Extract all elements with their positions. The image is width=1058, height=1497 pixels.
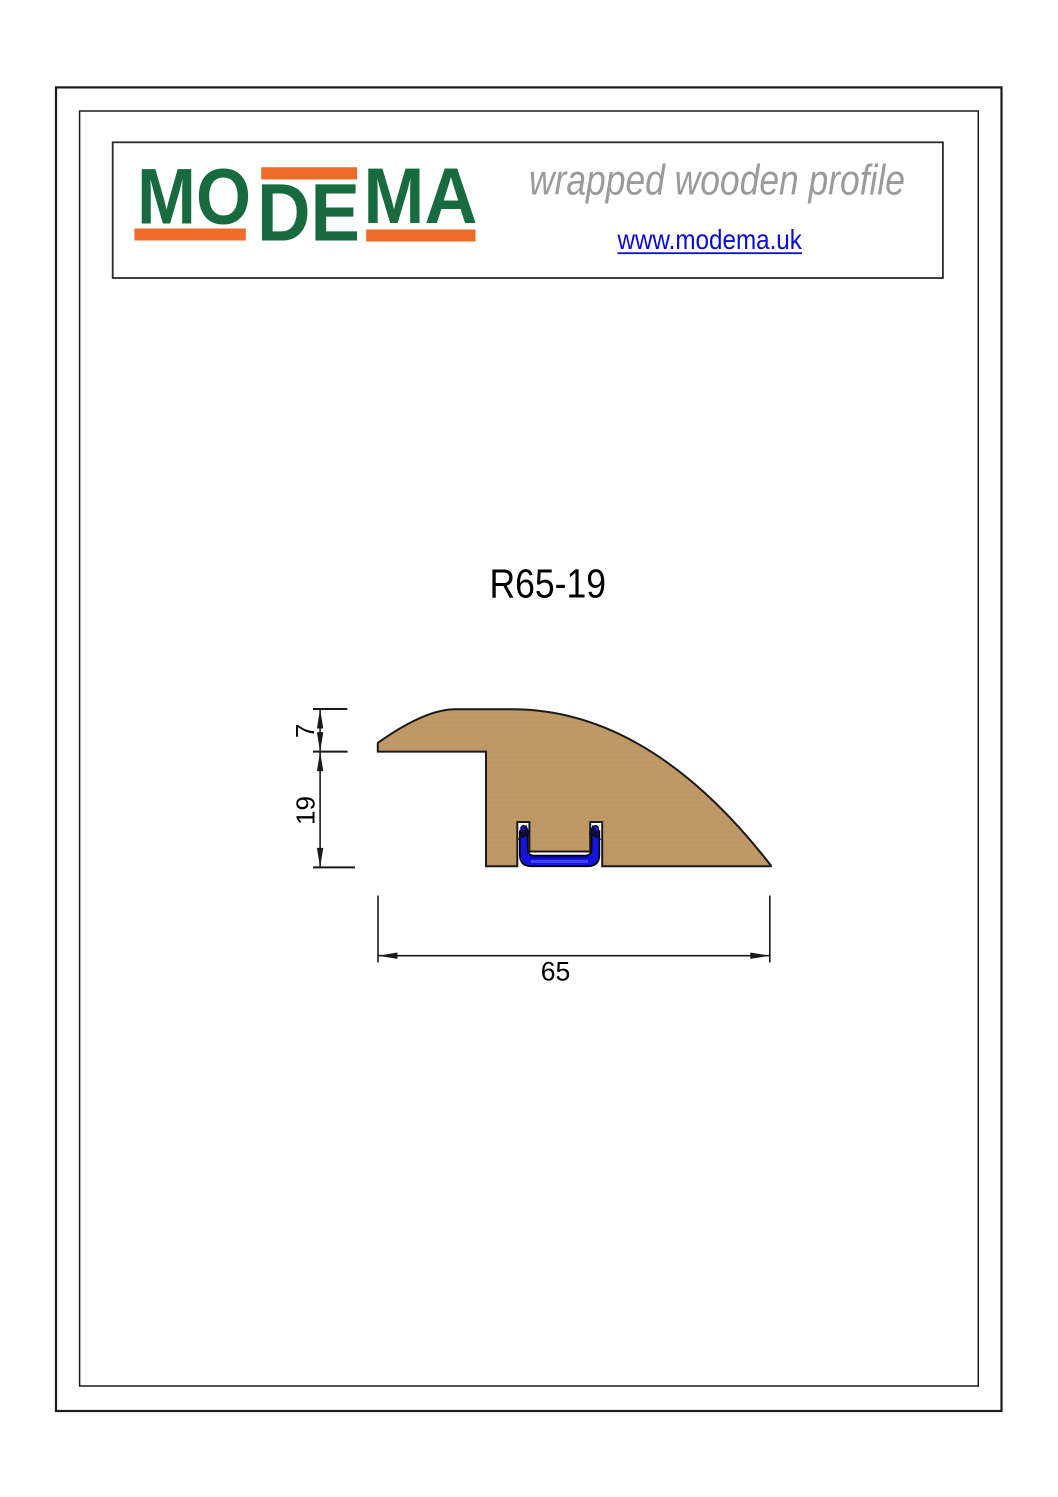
svg-text:7: 7 (290, 724, 320, 738)
svg-text:www.modema.uk: www.modema.uk (617, 224, 802, 255)
svg-text:DE: DE (257, 168, 360, 259)
svg-text:wrapped wooden profile: wrapped wooden profile (529, 157, 905, 205)
svg-text:MA: MA (363, 151, 477, 240)
svg-text:19: 19 (291, 796, 321, 825)
svg-text:R65-19: R65-19 (490, 561, 607, 607)
svg-text:65: 65 (541, 957, 571, 987)
svg-text:MO: MO (137, 152, 251, 241)
